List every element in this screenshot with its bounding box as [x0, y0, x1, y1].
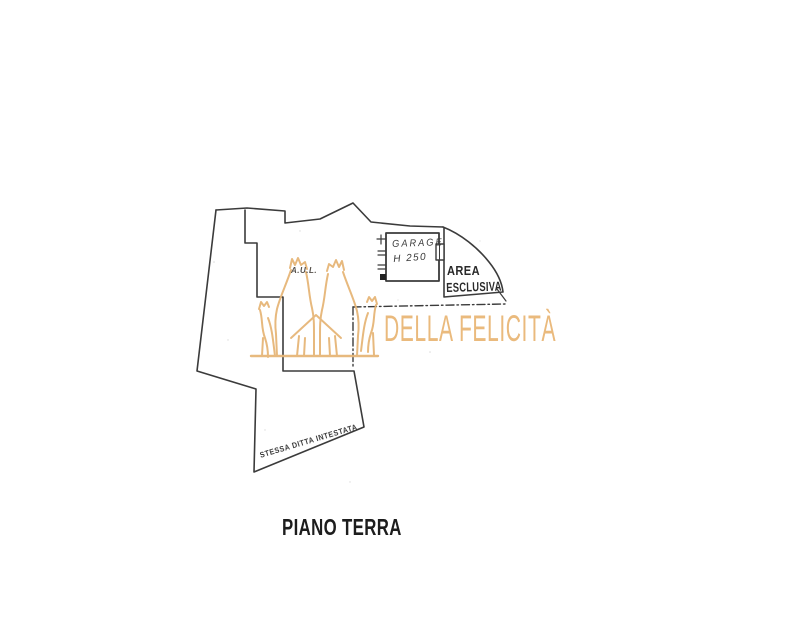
logo-roof-chevron — [291, 315, 341, 338]
small-giraffe-right — [361, 297, 377, 355]
exclusive-area-label-line2: ESCLUSIVA — [446, 279, 502, 295]
agency-watermark-text: DELLA FELICITÀ — [384, 308, 556, 350]
garage-corner-marker — [380, 274, 386, 280]
floor-title: PIANO TERRA — [282, 514, 402, 541]
exclusive-area-label-line1: AREA — [447, 263, 480, 278]
floor-plan-scan: GARAGE H 250 AREA ESCLUSIVA A.U.L. STESS… — [0, 0, 800, 630]
garage-step-marks — [377, 235, 386, 269]
garage-height-label: H 250 — [393, 252, 427, 265]
giraffe-legs — [297, 336, 337, 356]
small-giraffe-left — [259, 302, 275, 357]
top-boundary-path — [216, 203, 443, 227]
garage-label: GARAGE — [392, 237, 444, 250]
annex-label: A.U.L. — [291, 266, 317, 275]
